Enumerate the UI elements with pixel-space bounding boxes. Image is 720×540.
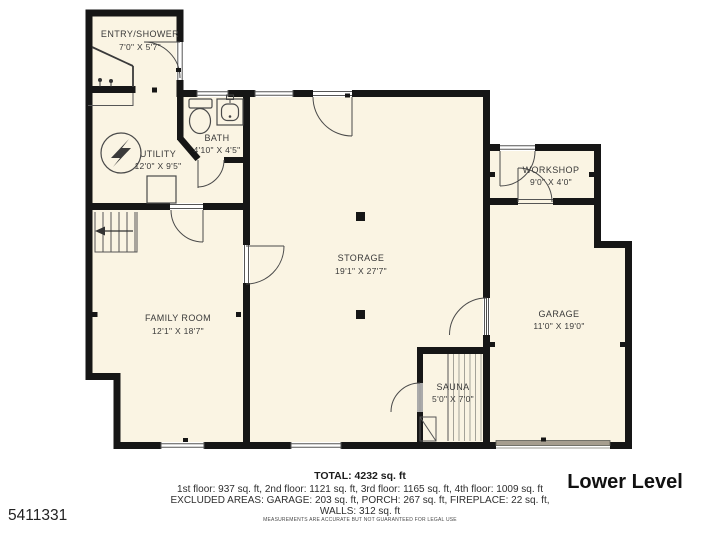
door-opening [243,245,250,283]
wall [203,203,250,210]
wall-tick [345,94,350,98]
room-label-entry-shower: ENTRY/SHOWER [101,29,179,39]
wall-tick [490,172,495,177]
room-label-bath: BATH [205,133,230,143]
excluded-areas-text: EXCLUDED AREAS: GARAGE: 203 sq. ft, PORC… [0,495,720,506]
wall-tick [541,438,546,442]
window [161,442,204,449]
room-label-utility: UTILITY [140,149,176,159]
wall-tick [183,438,188,442]
wall-tick [152,204,157,209]
wall-tick [152,88,157,93]
room-dims-workshop: 9'0" X 4'0" [530,177,572,187]
room-label-workshop: WORKSHOP [523,165,580,175]
wall [417,347,423,383]
room-label-family-room: FAMILY ROOM [145,313,211,323]
garage-door [496,440,610,450]
wall-tick [236,312,241,317]
support-post [356,310,365,319]
wall-tick [490,342,495,347]
wall-tick [93,312,98,317]
wall [86,86,136,93]
wall-tick [620,342,625,347]
wall-tick [589,172,594,177]
room-label-storage: STORAGE [338,253,385,263]
wall [243,93,250,245]
walls-area-text: WALLS: 312 sq. ft [0,506,720,517]
wall [483,93,490,298]
wall-tick [176,68,181,72]
room-dims-family-room: 12'1" X 18'7" [152,326,204,336]
listing-id: 5411331 [8,507,67,525]
room-dims-entry-shower: 7'0" X 5'7" [119,42,161,52]
level-label: Lower Level [540,471,710,494]
room-label-garage: GARAGE [539,309,580,319]
room-dims-utility: 12'0" X 9'5" [135,161,182,171]
door-opening [170,203,203,210]
room-dims-sauna: 5'0" X 7'0" [432,394,474,404]
room-dims-storage: 19'1" X 27'7" [335,266,387,276]
window [500,144,535,151]
wall [553,198,601,205]
wall [86,203,171,210]
room-label-sauna: SAUNA [436,382,469,392]
wall [224,157,250,163]
floor-plan-drawing: ENTRY/SHOWER 7'0" X 5'7" BATH 4'10" X 4'… [0,0,720,540]
support-post [356,212,365,221]
floor-outline [89,13,629,446]
floor-plan-page: ENTRY/SHOWER 7'0" X 5'7" BATH 4'10" X 4'… [0,0,720,540]
window [255,90,293,97]
wall [483,198,518,205]
wall [417,347,490,354]
wall [177,93,184,140]
room-dims-garage: 11'0" X 19'0" [533,321,584,331]
room-dims-bath: 4'10" X 4'5" [194,145,241,155]
wall [243,283,250,446]
disclaimer-text: MEASUREMENTS ARE ACCURATE BUT NOT GUARAN… [0,517,720,523]
window [291,442,341,449]
window [197,90,228,97]
